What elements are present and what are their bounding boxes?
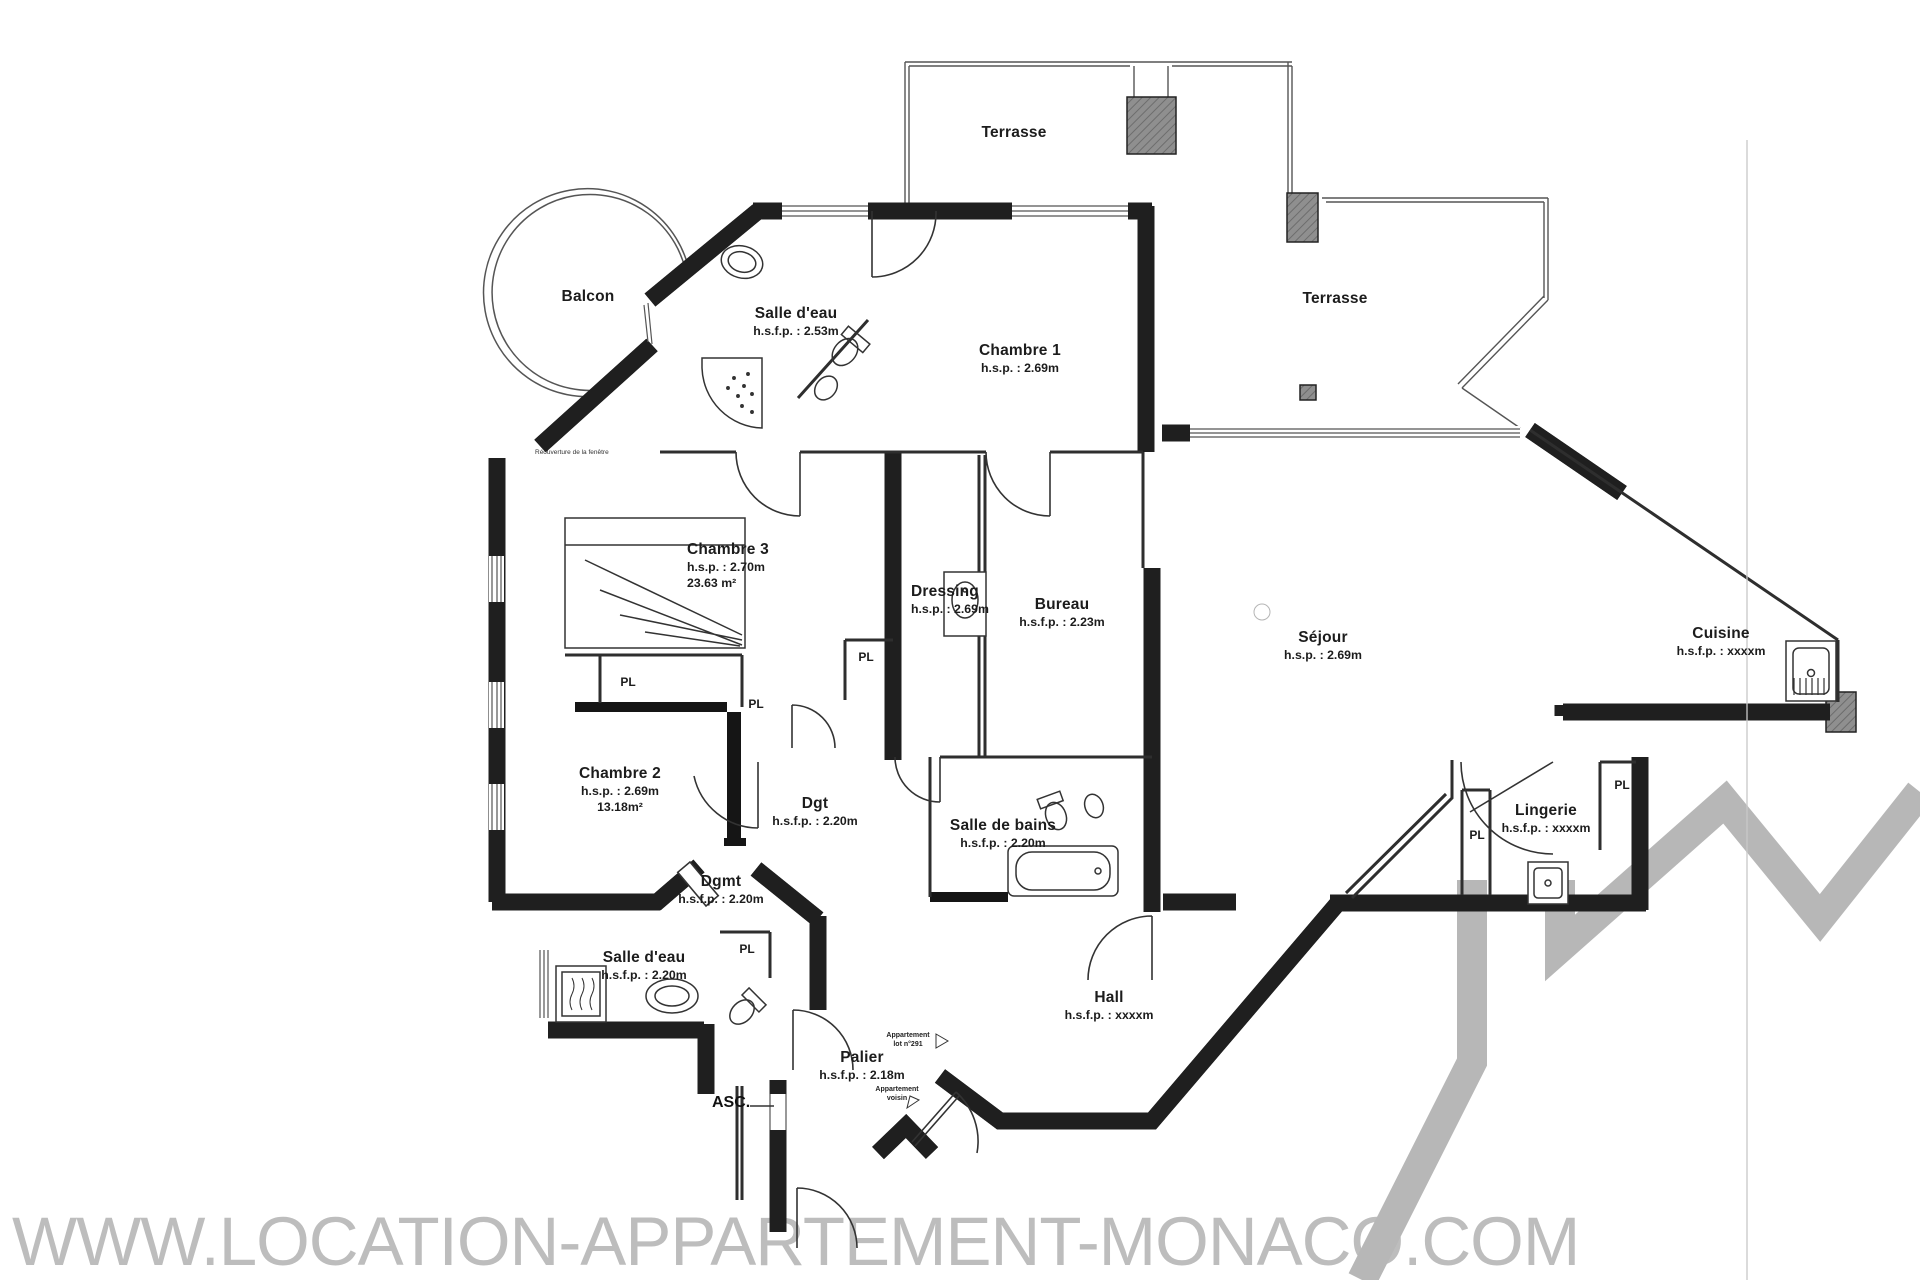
room-label-bureau: Bureau h.s.f.p. : 2.23m [1019, 595, 1104, 631]
room-name: Salle de bains [950, 816, 1056, 836]
closet-label-pl: PL [1614, 778, 1629, 792]
bidet-bath [1081, 792, 1106, 821]
room-height: h.s.f.p. : xxxxm [1502, 821, 1591, 837]
room-height: h.s.f.p. : 2.53m [753, 324, 838, 340]
room-label-palier: Palier h.s.f.p. : 2.18m [819, 1048, 904, 1084]
neighbour-apartment-note: Appartement voisin [875, 1086, 918, 1104]
room-label-dressing: Dressing h.s.p. : 2.69m [911, 582, 989, 618]
elevator-label: ASC. [712, 1094, 750, 1112]
bathtub [1008, 846, 1118, 896]
room-height: h.s.f.p. : xxxxm [1677, 644, 1766, 660]
wc-bottom [724, 988, 766, 1030]
room-height: h.s.f.p. : 2.20m [950, 836, 1056, 852]
room-height: h.s.p. : 2.69m [1284, 648, 1362, 664]
room-height: h.s.p. : 2.70m [687, 560, 769, 576]
room-name: Terrasse [981, 123, 1046, 143]
room-name: Séjour [1284, 628, 1362, 648]
bidet-top [810, 372, 842, 405]
room-name: Hall [1065, 988, 1154, 1008]
room-label-dgt: Dgt h.s.f.p. : 2.20m [772, 794, 857, 830]
room-name: Lingerie [1502, 801, 1591, 821]
shower-bottom [556, 966, 606, 1022]
room-height: h.s.f.p. : 2.18m [819, 1068, 904, 1084]
room-name: Chambre 2 [579, 764, 661, 784]
room-name: Palier [819, 1048, 904, 1068]
room-label-terrasse-top: Terrasse [981, 123, 1046, 143]
room-label-cuisine: Cuisine h.s.f.p. : xxxxm [1677, 624, 1766, 660]
room-label-chambre3: Chambre 3 h.s.p. : 2.70m 23.63 m² [687, 540, 769, 592]
main-walls [492, 206, 1830, 1232]
room-label-hall: Hall h.s.f.p. : xxxxm [1065, 988, 1154, 1024]
doors [678, 211, 1553, 1248]
room-name: Bureau [1019, 595, 1104, 615]
fixtures [556, 241, 1836, 1108]
room-area: 23.63 m² [687, 576, 769, 592]
room-height: h.s.p. : 2.69m [579, 784, 661, 800]
floor-plan-drawing [0, 0, 1920, 1280]
room-label-dgmt: Dgmt h.s.f.p. : 2.20m [678, 872, 763, 908]
room-label-chambre1: Chambre 1 h.s.p. : 2.69m [979, 341, 1061, 377]
room-name: Salle d'eau [601, 948, 686, 968]
closet-label-pl: PL [739, 942, 754, 956]
room-name: Dgt [772, 794, 857, 814]
kitchen-sink [1786, 641, 1836, 701]
room-name: Cuisine [1677, 624, 1766, 644]
window-reopening-note: Réouverture de la fenêtre [535, 449, 609, 456]
closet-label-pl: PL [620, 675, 635, 689]
room-name: Dgmt [678, 872, 763, 892]
room-label-lingerie: Lingerie h.s.f.p. : xxxxm [1502, 801, 1591, 837]
room-height: h.s.p. : 2.69m [979, 361, 1061, 377]
room-label-balcon: Balcon [562, 287, 615, 307]
room-label-salle-eau-bas: Salle d'eau h.s.f.p. : 2.20m [601, 948, 686, 984]
closet-label-pl: PL [748, 697, 763, 711]
closet-label-pl: PL [858, 650, 873, 664]
room-name: Balcon [562, 287, 615, 307]
room-height: h.s.f.p. : xxxxm [1065, 1008, 1154, 1024]
closet-label-pl: PL [1469, 828, 1484, 842]
room-height: h.s.f.p. : 2.20m [601, 968, 686, 984]
room-area: 13.18m² [579, 800, 661, 816]
room-height: h.s.f.p. : 2.20m [678, 892, 763, 908]
floor-plan-page: WWW.LOCATION-APPARTEMENT-MONACO.COM [0, 0, 1920, 1280]
room-height: h.s.p. : 2.69m [911, 602, 989, 618]
room-height: h.s.f.p. : 2.23m [1019, 615, 1104, 631]
shower-top [702, 358, 762, 428]
neighbour-lot-note: Appartement lot n°291 [886, 1032, 929, 1050]
room-name: Chambre 3 [687, 540, 769, 560]
room-name: Terrasse [1302, 289, 1367, 309]
room-label-salle-eau-haut: Salle d'eau h.s.f.p. : 2.53m [753, 304, 838, 340]
room-label-sejour: Séjour h.s.p. : 2.69m [1284, 628, 1362, 664]
room-label-terrasse-right: Terrasse [1302, 289, 1367, 309]
room-label-chambre2: Chambre 2 h.s.p. : 2.69m 13.18m² [579, 764, 661, 816]
room-name: Chambre 1 [979, 341, 1061, 361]
lot-arrow-icon [936, 1034, 948, 1048]
room-name: Salle d'eau [753, 304, 838, 324]
room-name: Dressing [911, 582, 989, 602]
room-label-salle-de-bains: Salle de bains h.s.f.p. : 2.20m [950, 816, 1056, 852]
water-heater [1528, 862, 1568, 904]
room-height: h.s.f.p. : 2.20m [772, 814, 857, 830]
